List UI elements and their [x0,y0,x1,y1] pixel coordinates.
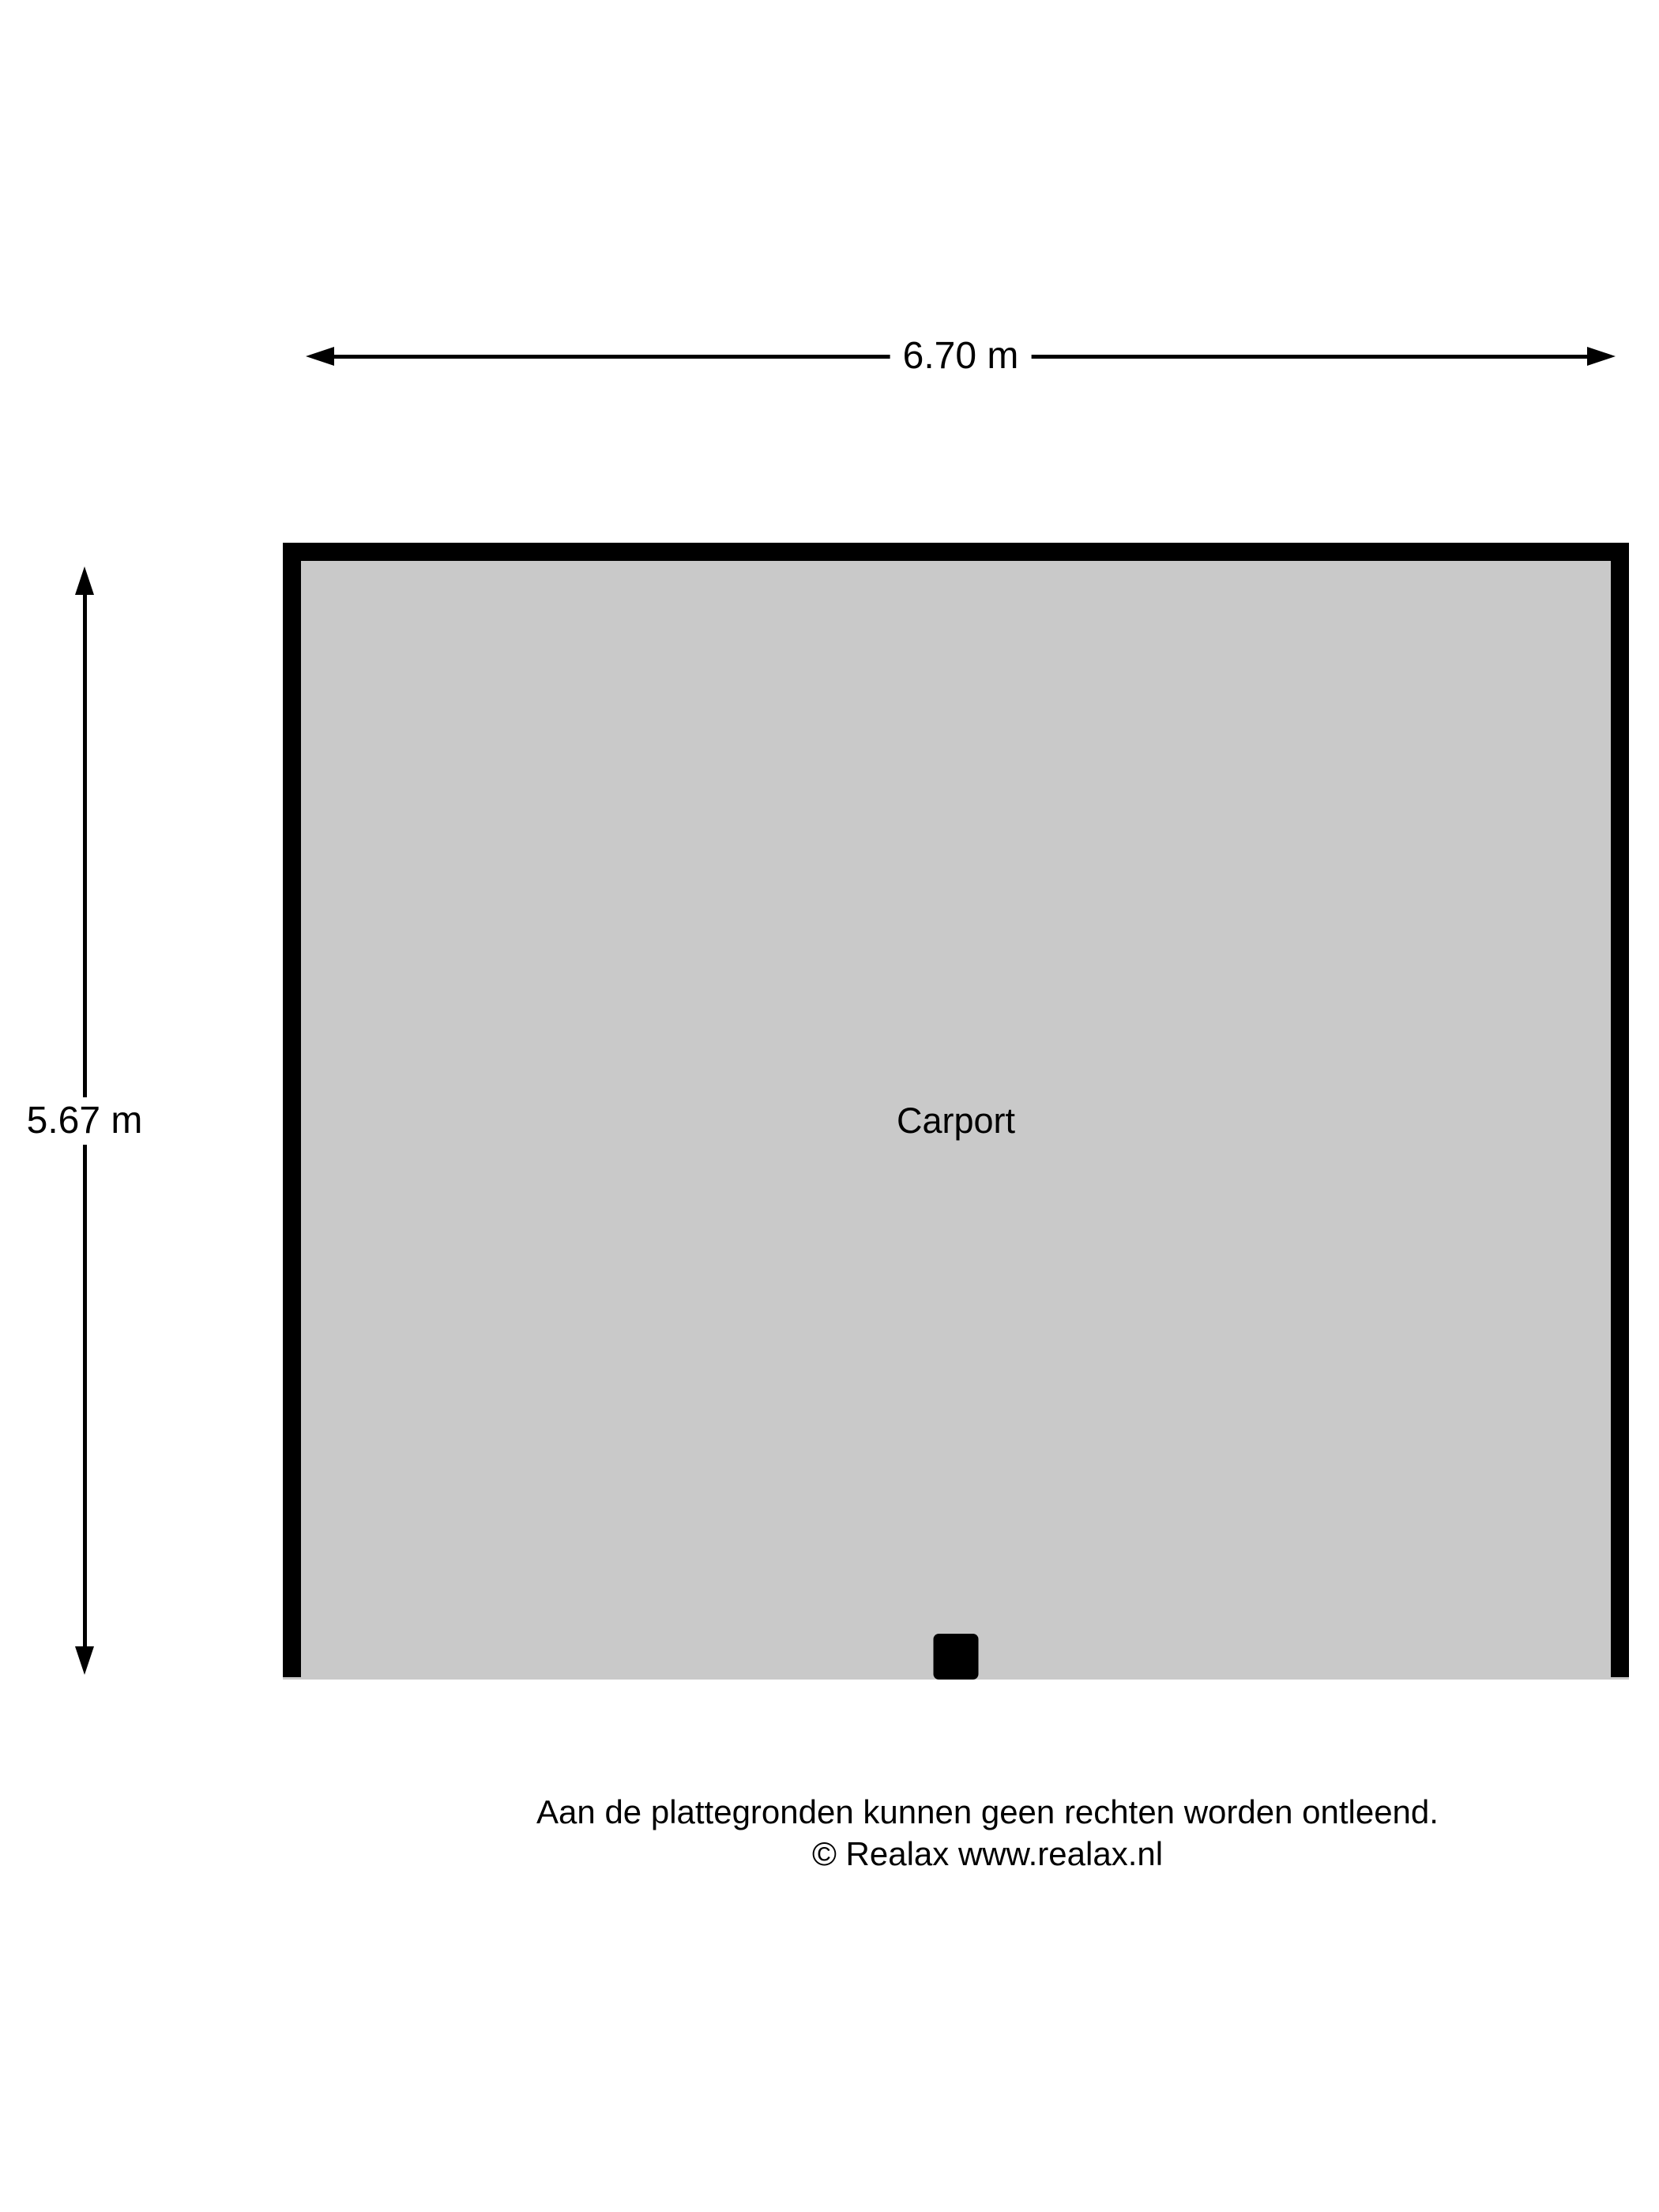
dimension-horizontal: 6.70 m [306,336,1616,377]
wall-right [1611,543,1629,1677]
floorplan-canvas: 6.70 m 5.67 m Carport Aan de plattegrond… [0,0,1659,2212]
arrow-down-icon [75,1646,94,1675]
room-label: Carport [897,1103,1015,1138]
support-post [934,1634,979,1680]
wall-top [283,543,1629,561]
disclaimer-line2: © Realax www.realax.nl [237,1833,1659,1875]
disclaimer-line1: Aan de plattegronden kunnen geen rechten… [237,1791,1659,1833]
dimension-label-height: 5.67 m [24,1097,146,1145]
dimension-label-width: 6.70 m [890,336,1032,377]
carport-room: Carport [283,543,1629,1680]
dimension-vertical: 5.67 m [64,566,105,1675]
arrow-right-icon [1587,347,1616,366]
wall-left [283,543,301,1677]
carport-floor: Carport [301,561,1611,1680]
disclaimer: Aan de plattegronden kunnen geen rechten… [237,1791,1659,1875]
